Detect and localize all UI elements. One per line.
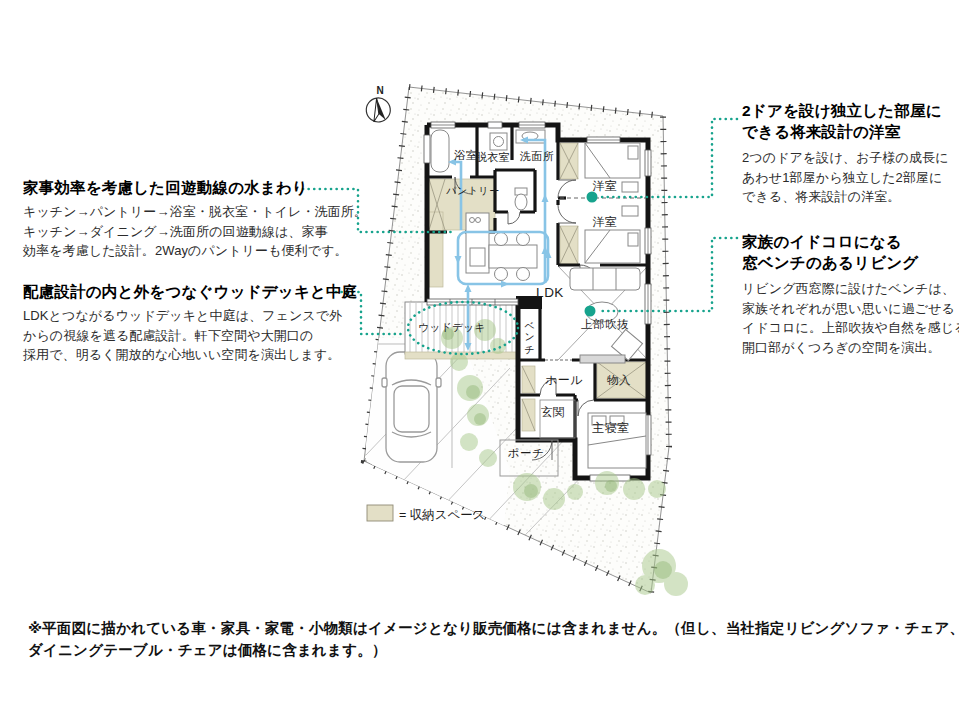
callout-future-rooms-body-line: できる、将来設計の洋室。 bbox=[742, 187, 949, 207]
disclaimer-text: ※平面図に描かれている車・家具・家電・小物類はイメージとなり販売価格には含まれま… bbox=[28, 617, 959, 661]
callout-wood-deck-body-line: LDKとつながるウッドデッキと中庭は、フェンスで外 bbox=[23, 306, 357, 326]
car bbox=[382, 352, 441, 462]
room-label-void-above: 上部吹抜 bbox=[581, 317, 629, 332]
callout-window-bench-heading-line: 家族のイドコロになる bbox=[742, 231, 959, 252]
room-label-west-room-1: 洋室 bbox=[593, 178, 618, 195]
room-label-closet: 物入 bbox=[607, 373, 631, 388]
callout-window-bench-heading-line: 窓ベンチのあるリビング bbox=[742, 252, 959, 273]
room-label-west-room-2: 洋室 bbox=[593, 214, 618, 231]
room-label-ldk: LDK bbox=[536, 285, 564, 300]
callout-window-bench-body-line: 開口部がくつろぎの空間を演出。 bbox=[742, 338, 959, 358]
callout-water-area-body-line: キッチン→パントリー→浴室・脱衣室・トイレ・洗面所。 bbox=[23, 202, 367, 222]
disclaimer-line: ダイニングテーブル・チェアは価格に含まれます。） bbox=[28, 639, 959, 661]
room-label-wood-deck: ウッドデッキ bbox=[418, 321, 485, 335]
room-label-bath: 浴室 bbox=[454, 148, 478, 163]
callout-wood-deck-heading: 配慮設計の内と外をつなぐウッドデッキと中庭 bbox=[23, 281, 357, 302]
floor-plan-page: N 浴室 脱衣室 洗面所 パントリー 洋室 洋室 LDK ウッドデッキ ベンチ … bbox=[0, 0, 959, 720]
callout-water-area: 家事効率を考慮した回遊動線の水まわり キッチン→パントリー→浴室・脱衣室・トイレ… bbox=[23, 177, 367, 261]
legend-storage-label: = 収納スペース bbox=[399, 507, 486, 524]
legend-storage-swatch bbox=[367, 505, 393, 521]
callout-water-area-heading: 家事効率を考慮した回遊動線の水まわり bbox=[23, 177, 367, 198]
callout-wood-deck-body-line: 採用で、明るく開放的な心地いい空間を演出します。 bbox=[23, 345, 357, 365]
callout-future-rooms-heading-line: 2ドアを設け独立した部屋に bbox=[742, 100, 949, 121]
callout-future-rooms-heading-line: できる将来設計の洋室 bbox=[742, 121, 949, 142]
callout-water-area-body-line: 効率を考慮した設計。2Wayのパントリーも便利です。 bbox=[23, 241, 367, 261]
callout-water-area-body-line: キッチン→ダイニング→洗面所の回遊動線は、家事 bbox=[23, 222, 367, 242]
callout-future-rooms-body-line: 2つのドアを設け、お子様の成長に bbox=[742, 148, 949, 168]
callout-window-bench-body-line: イドコロに。上部吹抜や自然を感じる bbox=[742, 318, 959, 338]
callout-wood-deck: 配慮設計の内と外をつなぐウッドデッキと中庭 LDKとつながるウッドデッキと中庭は… bbox=[23, 281, 357, 365]
room-label-hall: ホール bbox=[545, 372, 583, 389]
room-label-bench: ベンチ bbox=[522, 315, 536, 352]
callout-window-bench-body-line: リビング西窓際に設けたベンチは、 bbox=[742, 279, 959, 299]
callout-future-rooms-body-line: あわせ1部屋から独立した2部屋に bbox=[742, 168, 949, 188]
callout-wood-deck-body-line: からの視線を遮る配慮設計。軒下空間や大開口の bbox=[23, 326, 357, 346]
north-compass-icon bbox=[365, 96, 392, 123]
room-label-master-bedroom: 主寝室 bbox=[592, 420, 630, 437]
room-label-porch: ポーチ bbox=[508, 446, 545, 461]
room-label-dressing: 脱衣室 bbox=[476, 150, 511, 165]
room-label-washroom: 洗面所 bbox=[520, 149, 555, 164]
callout-future-rooms: 2ドアを設け独立した部屋に できる将来設計の洋室 2つのドアを設け、お子様の成長… bbox=[742, 100, 949, 207]
callout-window-bench: 家族のイドコロになる 窓ベンチのあるリビング リビング西窓際に設けたベンチは、 … bbox=[742, 231, 959, 357]
callout-window-bench-body-line: 家族それぞれが思い思いに過ごせる bbox=[742, 299, 959, 319]
room-label-pantry: パントリー bbox=[446, 184, 499, 198]
disclaimer-line: ※平面図に描かれている車・家具・家電・小物類はイメージとなり販売価格には含まれま… bbox=[28, 617, 959, 639]
room-label-entrance: 玄関 bbox=[541, 405, 565, 420]
north-label: N bbox=[376, 85, 383, 96]
